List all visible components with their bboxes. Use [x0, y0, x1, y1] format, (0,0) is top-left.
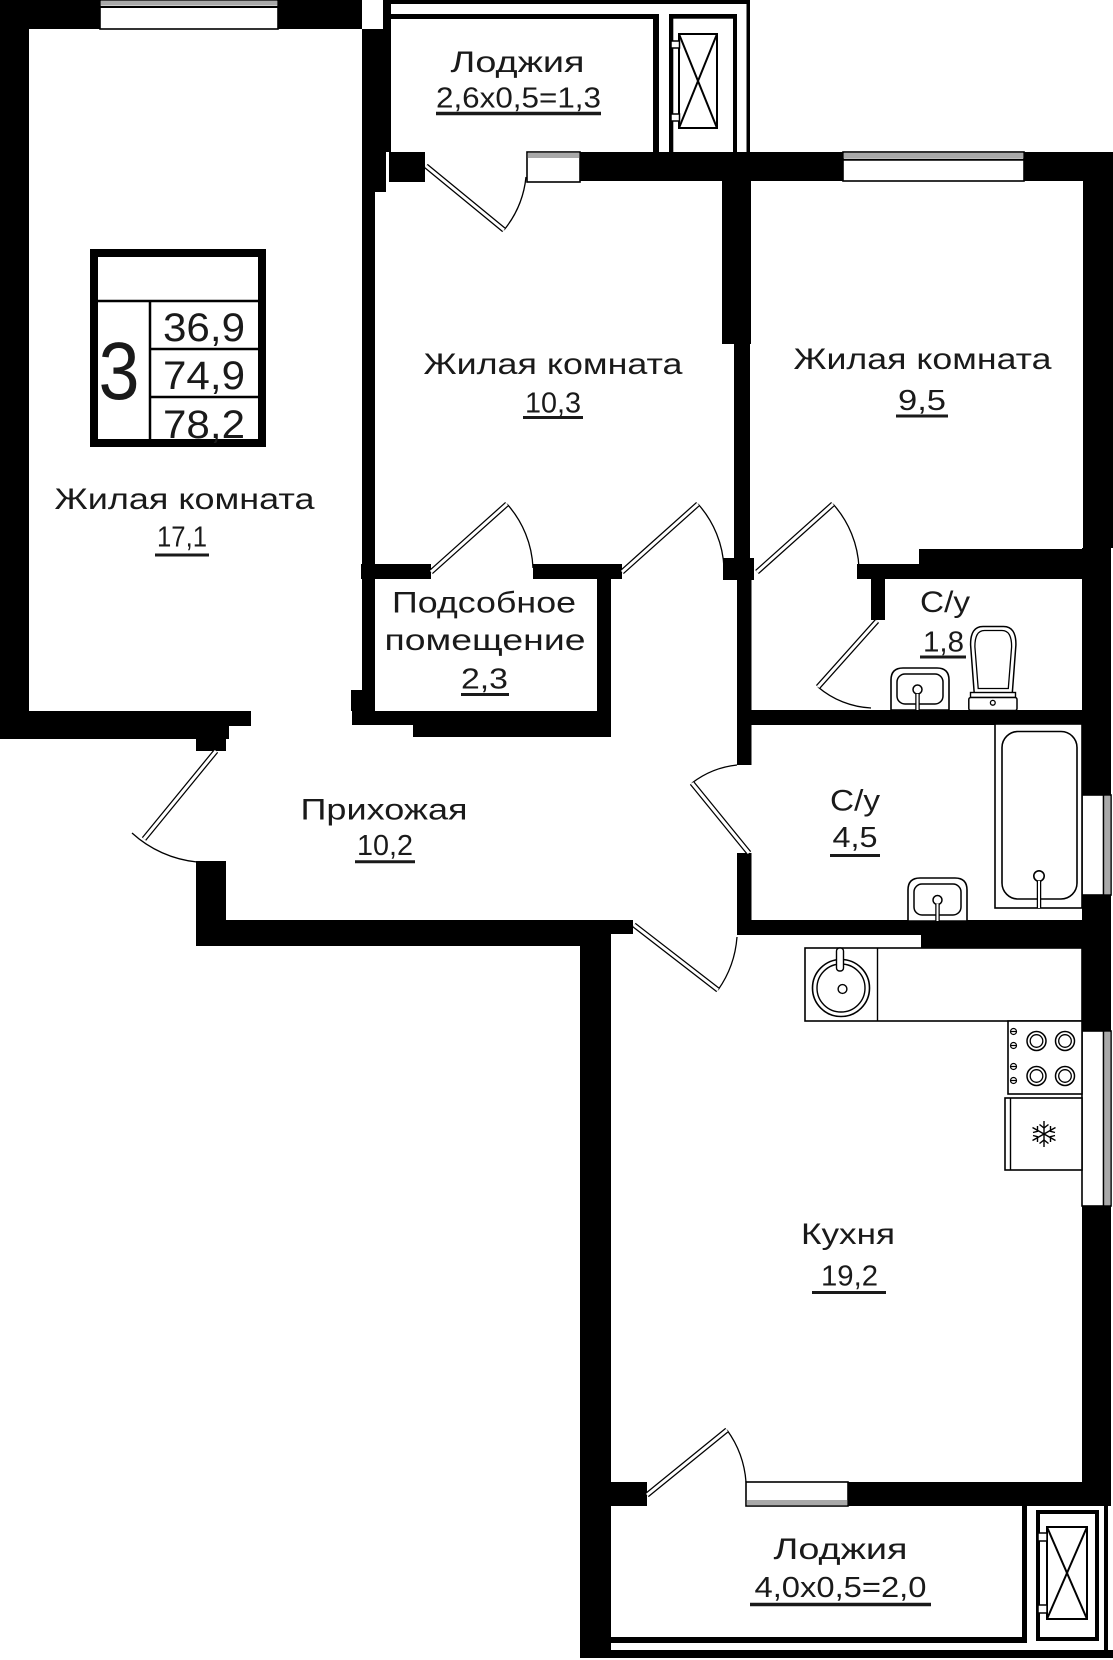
svg-text:4,5: 4,5 — [833, 822, 878, 854]
svg-text:помещение: помещение — [385, 624, 586, 657]
svg-text:74,9: 74,9 — [163, 354, 245, 398]
svg-text:Кухня: Кухня — [801, 1218, 895, 1251]
svg-text:Подсобное: Подсобное — [392, 587, 576, 620]
svg-text:С/у: С/у — [920, 586, 970, 619]
svg-text:Лоджия: Лоджия — [451, 46, 585, 79]
svg-text:9,5: 9,5 — [898, 385, 946, 417]
svg-text:36,9: 36,9 — [163, 306, 245, 350]
svg-text:Прихожая: Прихожая — [301, 794, 468, 827]
svg-text:2,6х0,5=1,3: 2,6х0,5=1,3 — [436, 83, 601, 115]
svg-text:19,2: 19,2 — [821, 1261, 878, 1293]
svg-text:78,2: 78,2 — [163, 403, 245, 447]
svg-text:2,3: 2,3 — [461, 664, 508, 696]
svg-text:1,8: 1,8 — [923, 627, 964, 659]
svg-text:10,2: 10,2 — [357, 830, 413, 862]
svg-text:Лоджия: Лоджия — [774, 1533, 908, 1566]
svg-text:3: 3 — [99, 326, 140, 417]
svg-text:С/у: С/у — [830, 785, 880, 818]
svg-text:10,3: 10,3 — [525, 388, 581, 420]
svg-text:Жилая комната: Жилая комната — [55, 483, 315, 516]
svg-text:17,1: 17,1 — [157, 522, 207, 554]
svg-text:4,0х0,5=2,0: 4,0х0,5=2,0 — [755, 1572, 927, 1604]
svg-text:Жилая комната: Жилая комната — [424, 348, 683, 381]
svg-text:Жилая комната: Жилая комната — [794, 343, 1052, 376]
